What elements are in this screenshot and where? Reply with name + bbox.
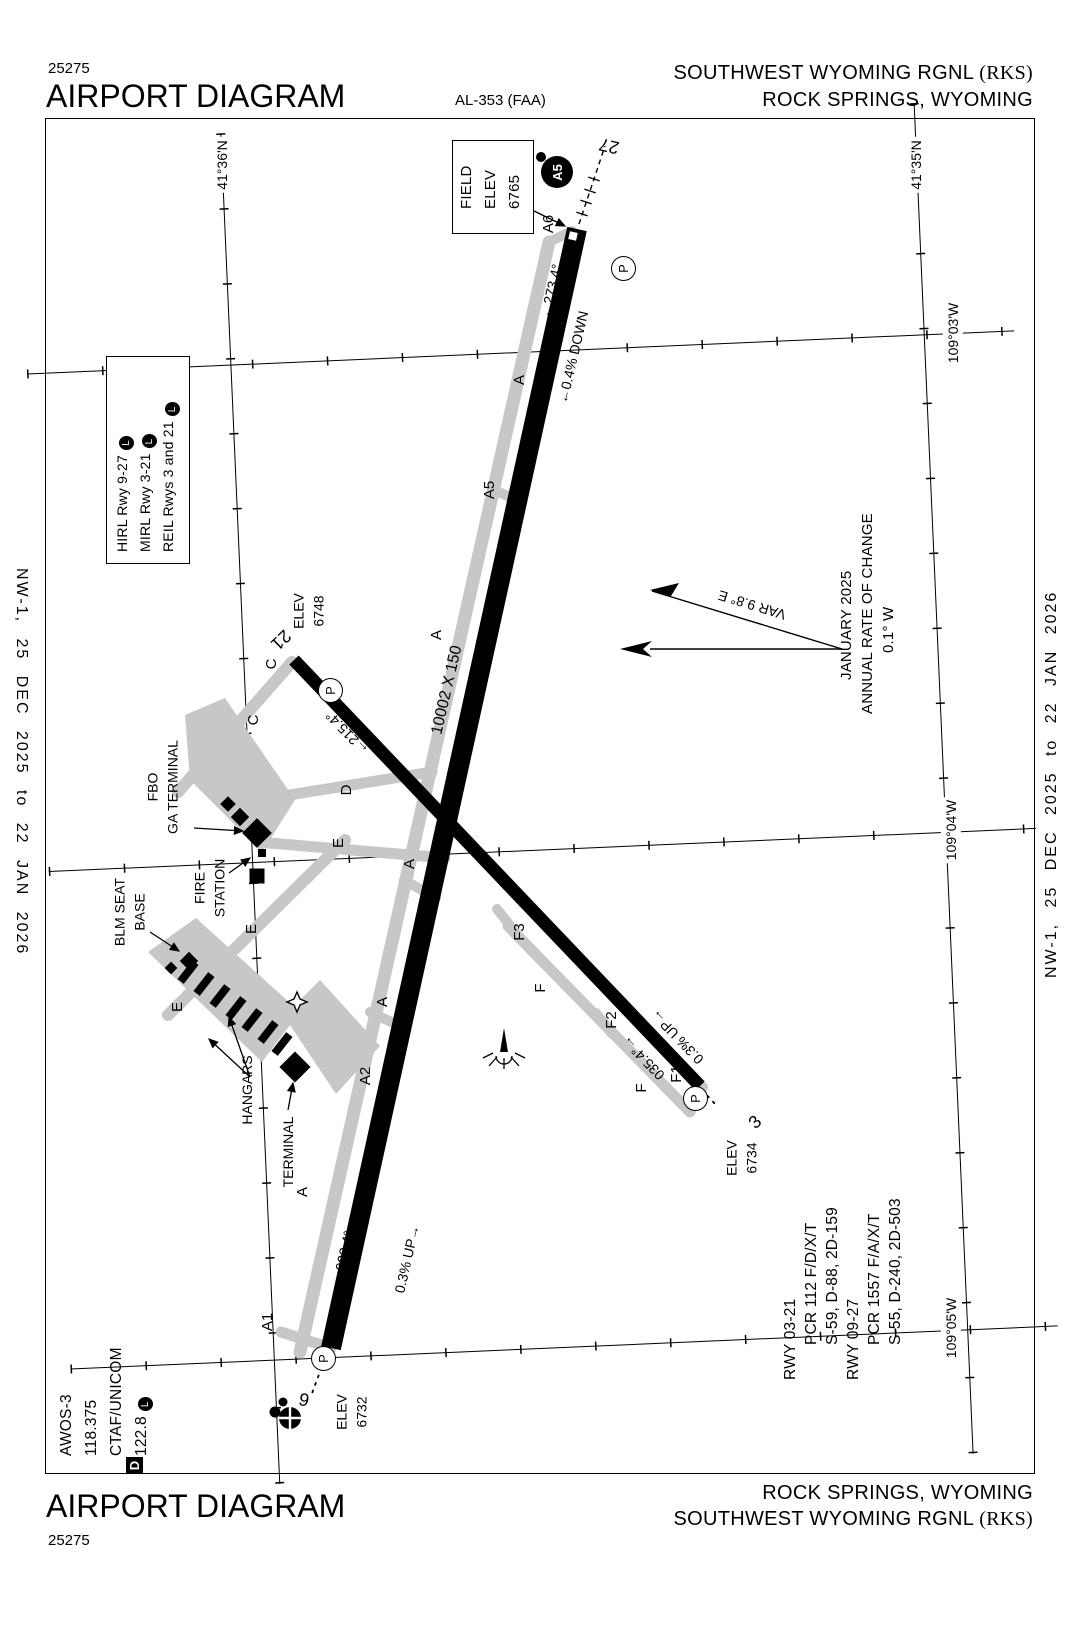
airport-city-top: ROCK SPRINGS, WYOMING [762, 89, 1033, 112]
rwy-data-line: RWY 03-21 [782, 1299, 800, 1380]
rwy-data-line: PCR 112 F/D/X/T [803, 1223, 821, 1345]
lighting-line-hirl: HIRL Rwy 9-27L [114, 436, 134, 552]
field-elev-value: 6765 [506, 175, 523, 209]
page-title-bottom: AIRPORT DIAGRAM [46, 1488, 345, 1525]
lighting-text: HIRL Rwy 9-27 [114, 455, 130, 552]
hold-letter: P [316, 1354, 331, 1363]
comm-ctaf-label: CTAF/UNICOM [108, 1347, 126, 1456]
lighting-line-reil: REIL Rwys 3 and 21L [160, 402, 180, 552]
procedure-id: AL-353 (FAA) [455, 92, 546, 109]
hold-marker-rwy27: P [611, 256, 636, 281]
rwy-data-line: S-55, D-240, 2D-503 [887, 1198, 905, 1345]
effective-dates-left: NW-1, 25 DEC 2025 to 22 JAN 2026 [12, 568, 30, 955]
airport-name-bottom: SOUTHWEST WYOMING RGNL (RKS) [673, 1508, 1033, 1531]
lighting-text: REIL Rwys 3 and 21 [160, 421, 176, 552]
chart-number-bottom: 25275 [48, 1532, 90, 1549]
field-elev-line2: ELEV [482, 170, 499, 209]
magvar-date: JANUARY 2025 [838, 571, 855, 680]
airport-city-bottom: ROCK SPRINGS, WYOMING [762, 1482, 1033, 1505]
airport-name-text: SOUTHWEST WYOMING RGNL [673, 1508, 973, 1530]
data-badge-letter: D [127, 1461, 142, 1470]
effective-dates-right: NW-1, 25 DEC 2025 to 22 JAN 2026 [1043, 591, 1061, 978]
airport-name-text: SOUTHWEST WYOMING RGNL [673, 62, 973, 84]
ctaf-freq-text: 122.8 [133, 1416, 150, 1456]
chart-number-top: 25275 [48, 60, 90, 77]
lighting-line-mirl: MIRL Rwy 3-21L [137, 434, 157, 552]
a5-sign-text: A5 [550, 164, 565, 181]
hold-letter: P [323, 686, 338, 695]
hold-marker-rwy21: P [318, 678, 343, 703]
rwy-data-line: S-59, D-88, 2D-159 [824, 1207, 842, 1345]
a5-hold-sign: A5 [541, 156, 573, 188]
magvar-note: ANNUAL RATE OF CHANGE [859, 513, 876, 714]
hold-letter: P [688, 1094, 703, 1103]
rwy-data-line: PCR 1557 F/A/X/T [866, 1213, 884, 1345]
data-link-badge: D [126, 1457, 143, 1474]
comm-ctaf-freq: 122.8L [133, 1397, 153, 1456]
airport-diagram-page: 25275 AIRPORT DIAGRAM AL-353 (FAA) SOUTH… [0, 0, 1076, 1650]
page-title-top: AIRPORT DIAGRAM [46, 78, 345, 115]
comm-awos-freq: 118.375 [83, 1400, 101, 1456]
pilot-controlled-lighting-icon: L [119, 436, 134, 450]
field-elev-line1: FIELD [458, 165, 475, 209]
hold-letter: P [616, 264, 631, 273]
comm-awos-label: AWOS-3 [58, 1394, 76, 1456]
airport-name-top: SOUTHWEST WYOMING RGNL (RKS) [673, 62, 1033, 85]
pilot-controlled-lighting-icon: L [142, 434, 157, 448]
magvar-rate: 0.1° W [880, 607, 897, 653]
pilot-controlled-lighting-icon: L [138, 1397, 153, 1411]
hold-marker-rwy3: P [683, 1086, 708, 1111]
rwy-data-line: RWY 09-27 [845, 1299, 863, 1380]
hold-marker-rwy9: P [311, 1346, 336, 1371]
airport-id-text: (RKS) [979, 62, 1033, 84]
pilot-controlled-lighting-icon: L [165, 402, 180, 416]
lighting-text: MIRL Rwy 3-21 [137, 453, 153, 552]
airport-id-text: (RKS) [979, 1508, 1033, 1530]
